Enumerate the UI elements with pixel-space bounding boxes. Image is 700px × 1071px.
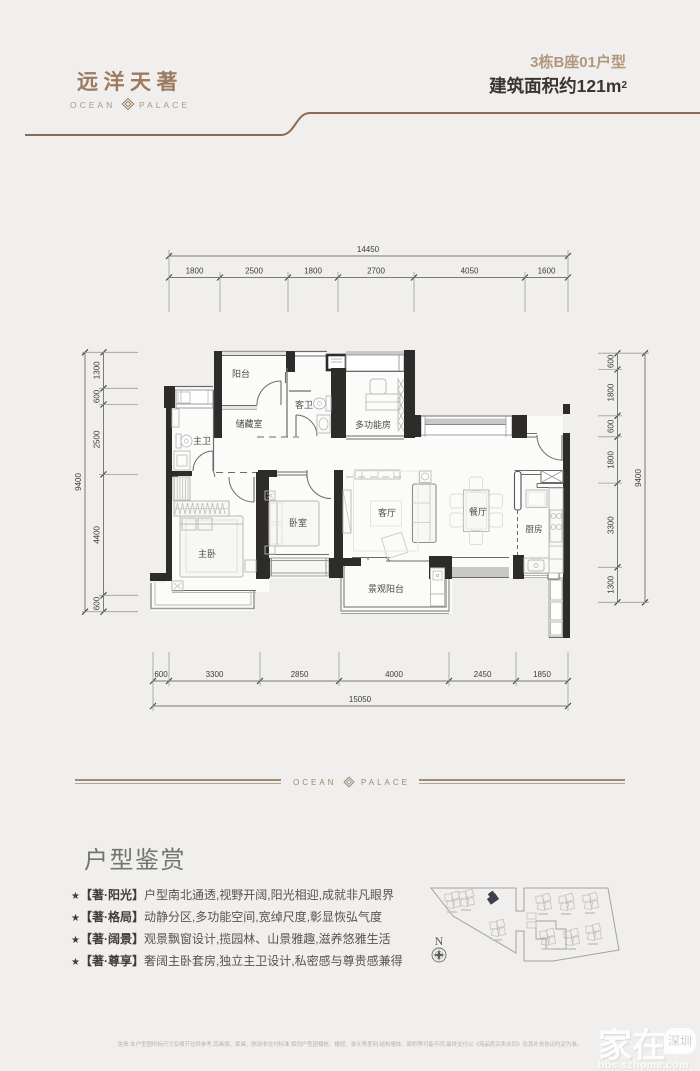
svg-text:1800: 1800	[304, 267, 322, 276]
svg-text:储藏室: 储藏室	[235, 418, 262, 429]
svg-text:9400: 9400	[634, 469, 643, 487]
svg-text:客卫: 客卫	[295, 399, 313, 410]
svg-text:厨房: 厨房	[525, 524, 542, 534]
svg-text:1850: 1850	[533, 670, 551, 679]
svg-text:1800: 1800	[607, 383, 616, 401]
svg-text:1600: 1600	[538, 267, 556, 276]
svg-text:阳台: 阳台	[232, 368, 250, 379]
svg-text:1300: 1300	[93, 361, 102, 379]
svg-text:9400: 9400	[74, 473, 83, 491]
svg-text:主卫: 主卫	[193, 435, 211, 446]
svg-text:600: 600	[607, 354, 616, 368]
svg-text:2850: 2850	[291, 670, 309, 679]
svg-text:主卧: 主卧	[198, 548, 216, 559]
svg-text:多功能房: 多功能房	[355, 419, 391, 430]
svg-text:3300: 3300	[607, 516, 616, 534]
svg-text:1800: 1800	[186, 267, 204, 276]
svg-text:客厅: 客厅	[378, 507, 396, 518]
svg-text:3300: 3300	[206, 670, 224, 679]
svg-text:4050: 4050	[461, 267, 479, 276]
svg-text:4400: 4400	[93, 525, 102, 543]
svg-text:餐厅: 餐厅	[469, 506, 487, 517]
svg-text:4000: 4000	[385, 670, 403, 679]
svg-text:2700: 2700	[367, 267, 385, 276]
svg-text:600: 600	[607, 419, 616, 433]
svg-text:2500: 2500	[245, 267, 263, 276]
svg-text:2500: 2500	[93, 430, 102, 448]
svg-text:1800: 1800	[607, 451, 616, 469]
svg-text:600: 600	[154, 670, 168, 679]
svg-text:2450: 2450	[474, 670, 492, 679]
svg-text:景观阳台: 景观阳台	[368, 583, 404, 594]
svg-text:15050: 15050	[349, 695, 372, 704]
svg-text:卧室: 卧室	[289, 517, 307, 528]
svg-text:N: N	[435, 934, 444, 948]
svg-text:14450: 14450	[357, 245, 380, 254]
svg-text:600: 600	[93, 389, 102, 403]
svg-text:1300: 1300	[607, 575, 616, 593]
svg-text:600: 600	[93, 596, 102, 610]
